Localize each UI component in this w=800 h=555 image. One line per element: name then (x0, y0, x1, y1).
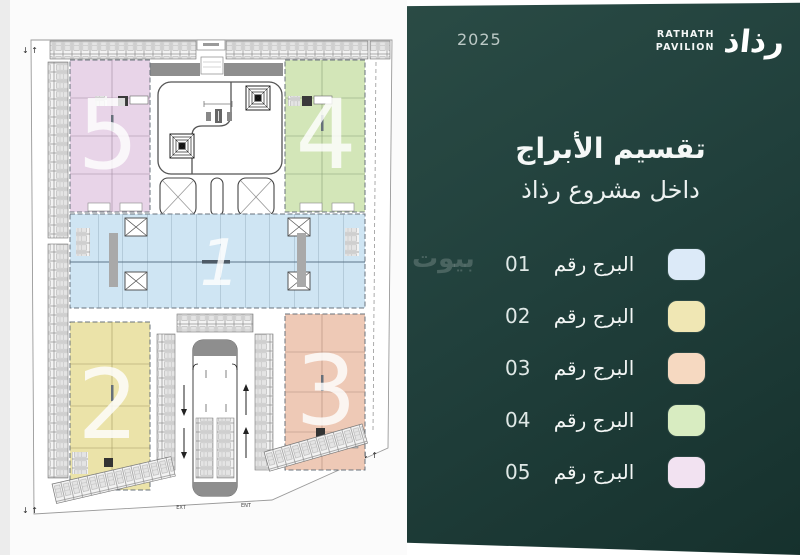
legend-swatch-04 (668, 405, 705, 436)
tower-4-number: 4 (295, 79, 356, 191)
legend-number: 03 (505, 356, 547, 380)
svg-text:I: I (204, 402, 207, 415)
tower-legend: 01 البرج رقم 02 البرج رقم 03 البرج رقم 0… (505, 238, 705, 498)
legend-item-01: 01 البرج رقم (505, 238, 705, 290)
legend-swatch-05 (668, 457, 705, 488)
garage-entry-label: ENT (241, 503, 252, 509)
tower-5-area: 5 (70, 60, 150, 212)
legend-item-02: 02 البرج رقم (505, 290, 705, 342)
plan-page: ↓ ↑ ↓ ↑ ↓ ↑ ↓ ↑ (0, 0, 407, 555)
brand-wordmark: RATHATH PAVILION (656, 29, 715, 55)
legend-swatch-01 (668, 249, 705, 280)
tower-1-area: 1 (70, 214, 365, 308)
legend-item-04: 04 البرج رقم (505, 394, 705, 446)
svg-text:↓ ↑: ↓ ↑ (22, 46, 38, 55)
tower-4-area: 4 (285, 60, 365, 212)
legend-label: البرج رقم (547, 252, 641, 276)
legend-label: البرج رقم (547, 408, 641, 432)
legend-number: 05 (505, 460, 547, 484)
watermark: بيوت (412, 244, 475, 274)
legend-swatch-03 (668, 353, 705, 384)
legend-label: البرج رقم (547, 304, 641, 328)
courtyard-ramps (160, 178, 274, 216)
legend-number: 04 (505, 408, 547, 432)
legend-item-05: 05 البرج رقم (505, 446, 705, 498)
legend-number: 01 (505, 252, 547, 276)
legend-label: البرج رقم (547, 356, 641, 380)
title-line2: داخل مشروع رذاذ (457, 176, 764, 204)
svg-text:I: I (224, 368, 227, 381)
garage-exit-label: EXT (176, 505, 186, 511)
tower-5-number: 5 (77, 79, 138, 191)
brand-calligraphy-icon: رذاذ (722, 24, 786, 60)
tower-2-number: 2 (77, 349, 138, 461)
svg-text:↓ ↑: ↓ ↑ (22, 506, 38, 515)
svg-text:I: I (204, 368, 207, 381)
legend-swatch-02 (668, 301, 705, 332)
legend-number: 02 (505, 304, 547, 328)
brand-line1: RATHATH (656, 29, 715, 42)
legend-item-03: 03 البرج رقم (505, 342, 705, 394)
legend-label: البرج رقم (547, 460, 641, 484)
year-label: 2025 (457, 30, 502, 49)
title-line1: تقسيم الأبراج (457, 132, 764, 165)
info-panel: 2025 RATHATH PAVILION رذاذ تقسيم الأبراج… (407, 0, 800, 555)
svg-text:I: I (224, 402, 227, 415)
tower-1-number: 1 (200, 227, 241, 301)
page-title: تقسيم الأبراج داخل مشروع رذاذ (457, 132, 764, 204)
floor-plan: ↓ ↑ ↓ ↑ ↓ ↑ ↓ ↑ (0, 0, 407, 555)
brand-line2: PAVILION (656, 42, 715, 55)
brand-logo: RATHATH PAVILION رذاذ (656, 24, 784, 60)
parking-column-left (48, 62, 68, 478)
